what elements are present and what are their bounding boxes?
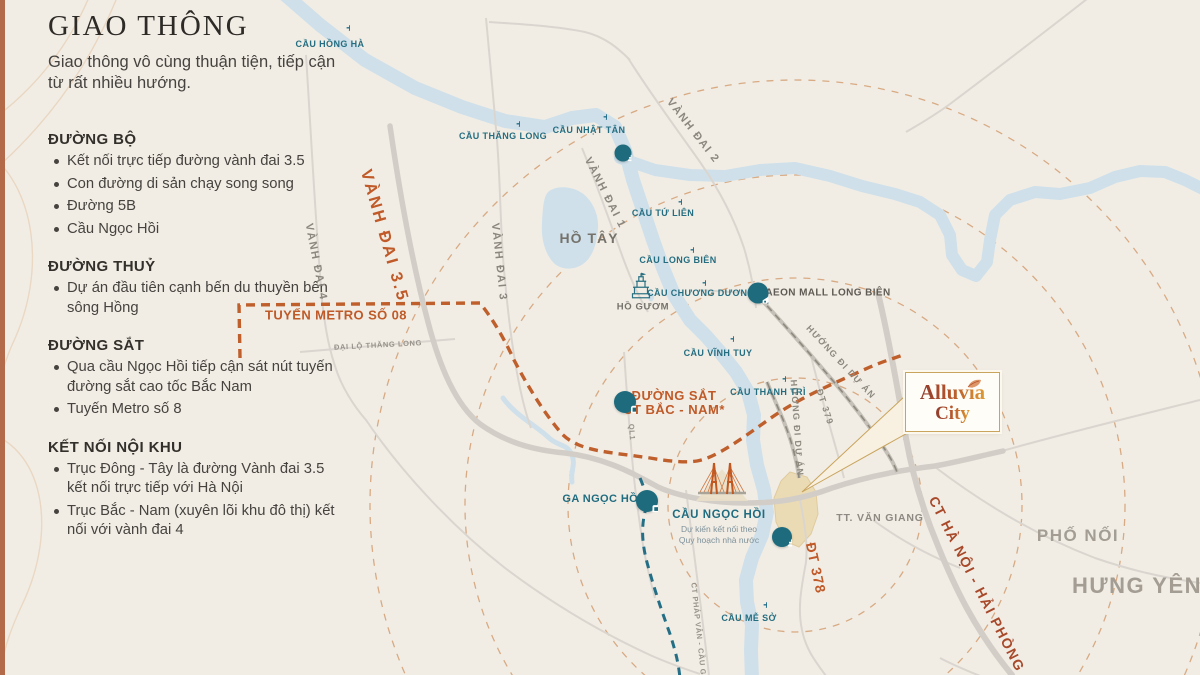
map-label: PHỐ NỐI xyxy=(1037,526,1119,546)
map-label: VÀNH ĐAI 3.5 xyxy=(356,167,412,304)
map-label: HỒ TÂY xyxy=(560,230,619,246)
bridge-icon xyxy=(727,586,767,608)
map-label: ĐT 378 xyxy=(803,541,829,595)
ngoc-hoi-note-line1: Dự kiến kết nối theo xyxy=(672,524,765,535)
project-name-bottom: City xyxy=(935,404,970,423)
map-label: VÀNH ĐAI 1 xyxy=(582,155,628,230)
ngoc-hoi-note: Dự kiến kết nối theo Quy hoạch nhà nước xyxy=(672,524,765,545)
map-label: VÀNH ĐAI 4 xyxy=(303,222,330,301)
bridge-label: CẦU VĨNH TUY xyxy=(684,348,753,358)
map-label: AEON MALL LONG BIÊN xyxy=(765,288,890,299)
transport-map-page: GIAO THÔNG Giao thông vô cùng thuận tiện… xyxy=(0,0,1200,675)
map-label: TUYẾN METRO SỐ 08 xyxy=(265,308,407,323)
pagoda-poi-icon xyxy=(772,527,792,547)
map-labels: ĐƯỜNG SẮT CT BẮC - NAM* CẦU NGỌC HỒI Dự … xyxy=(0,0,1200,675)
map-label: VÀNH ĐAI 2 xyxy=(664,96,722,165)
map-label: HƯỚNG ĐI DỰ ÁN xyxy=(804,323,877,401)
pagoda-poi-icon xyxy=(615,145,632,162)
map-label: VÀNH ĐAI 3 xyxy=(489,222,509,301)
high-speed-rail-label: ĐƯỜNG SẮT CT BẮC - NAM* xyxy=(623,389,725,417)
map-label: HỒ GƯƠM xyxy=(617,302,669,313)
ngoc-hoi-bridge-art xyxy=(694,459,750,503)
bridge-label: CẦU MỄ SỞ xyxy=(721,613,776,623)
project-callout: Alluvia City xyxy=(905,372,1000,432)
ngoc-hoi-note-line2: Quy hoạch nhà nước xyxy=(672,535,765,546)
map-label: HƯNG YÊN xyxy=(1072,573,1200,599)
rail-label-line1: ĐƯỜNG SẮT xyxy=(623,389,725,403)
bridge-icon xyxy=(480,105,520,127)
bridge-label: CẦU CHƯƠNG DƯƠNG xyxy=(647,288,755,298)
map-label: QL1 xyxy=(627,424,637,441)
bridge-icon xyxy=(746,360,786,382)
bridge-label: CẦU HỒNG HÀ xyxy=(296,39,365,49)
map-label: GA NGỌC HỒI xyxy=(562,493,641,505)
bridge-icon xyxy=(642,183,682,205)
ngoc-hoi-bridge-label: CẦU NGỌC HỒI xyxy=(672,509,765,521)
bridge-icon xyxy=(666,264,706,286)
rail-label-line2: CT BẮC - NAM* xyxy=(623,403,725,417)
map-label: ĐẠI LỘ THĂNG LONG xyxy=(334,338,422,352)
bridge-label: CẦU THĂNG LONG xyxy=(459,131,547,141)
bridge-icon xyxy=(567,98,607,120)
bridge-label: CẦU TỨ LIÊN xyxy=(632,208,694,218)
map-label: TT. VĂN GIANG xyxy=(836,512,923,524)
mall-poi-icon xyxy=(748,283,769,304)
bridge-icon xyxy=(654,231,694,253)
ngoc-hoi-label-block: CẦU NGỌC HỒI Dự kiến kết nối theo Quy ho… xyxy=(672,509,765,545)
bridge-icon xyxy=(310,9,350,31)
map-label: CT PHÁP VÂN - CẦU GIẼ xyxy=(689,582,709,675)
bridge-label: CẦU THANH TRÌ xyxy=(730,387,806,397)
metro-poi-icon xyxy=(636,490,658,512)
bridge-label: CẦU NHẬT TÂN xyxy=(553,125,626,135)
train-poi-icon xyxy=(614,391,636,413)
bridge-icon xyxy=(694,320,734,342)
map-label: ĐT 379 xyxy=(814,388,835,427)
map-label: CT HÀ NỘI - HẢI PHÒNG xyxy=(926,494,1029,675)
leaf-icon xyxy=(966,378,983,389)
